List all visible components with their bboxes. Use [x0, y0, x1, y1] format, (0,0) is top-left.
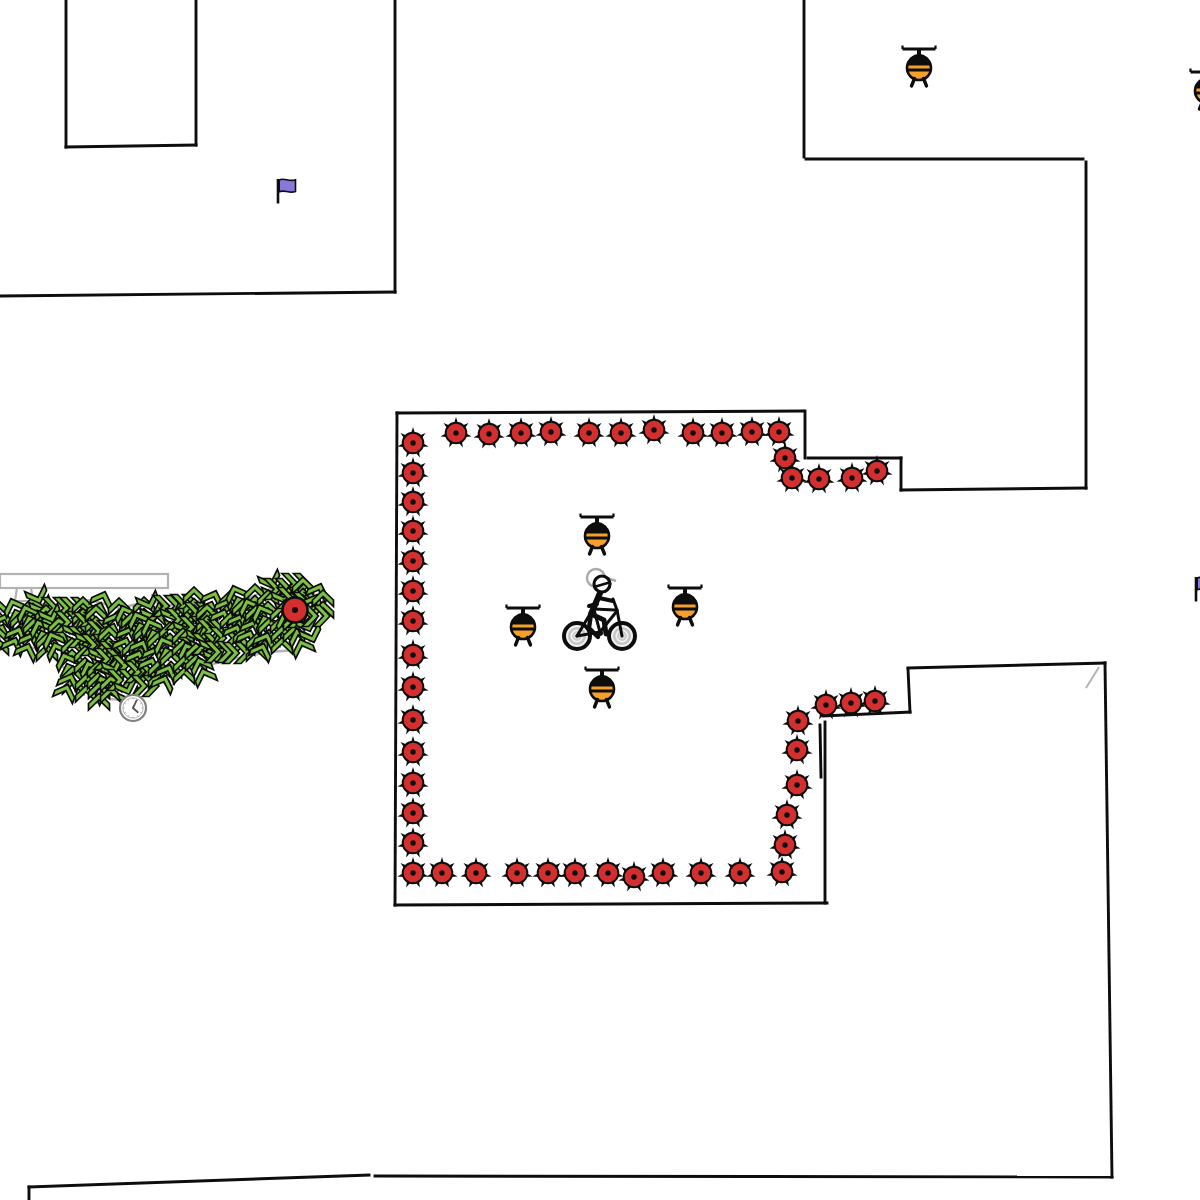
mine-icon: [638, 414, 669, 444]
mine-icon: [397, 457, 428, 487]
mine-icon: [397, 575, 428, 605]
wall-line: [1105, 663, 1112, 1177]
helicopter-icon: [1191, 69, 1200, 110]
walls-layer: [0, 0, 1112, 1200]
mine-icon: [501, 857, 532, 887]
mine-icon: [397, 515, 428, 545]
mine-icon: [559, 857, 590, 887]
mine-icon: [535, 416, 566, 446]
helicopter-icon: [507, 605, 540, 646]
flag-icon: [278, 179, 296, 204]
mine-icon: [724, 857, 755, 887]
cyclist-player: [564, 569, 635, 649]
corner-mark: [1086, 667, 1099, 688]
clock-tick: [124, 703, 125, 704]
wall-line: [908, 663, 1105, 668]
wall-line: [395, 903, 827, 905]
helicopter-icon: [586, 667, 619, 708]
helicopter-icon: [903, 46, 936, 87]
red-ball-icon: [283, 598, 308, 623]
clock-tick: [128, 699, 129, 700]
trees-layer: [0, 569, 334, 710]
mine-icon: [397, 486, 428, 516]
clock-tick: [128, 715, 129, 716]
mine-icon: [647, 857, 678, 887]
mine-icon: [440, 417, 471, 447]
wall-line: [908, 669, 910, 712]
mine-icon: [771, 799, 802, 829]
mine-icon: [677, 417, 708, 447]
mine-icon: [473, 418, 504, 448]
mine-icon: [397, 797, 428, 827]
stand-bar: [0, 574, 168, 588]
mine-icon: [736, 416, 767, 446]
mine-icon: [803, 463, 834, 493]
wall-line: [66, 145, 196, 147]
clock-tick: [140, 703, 141, 704]
helicopter-icon: [669, 585, 702, 626]
wall-line: [901, 488, 1086, 490]
scene-svg: [0, 0, 1200, 1200]
game-canvas[interactable]: [0, 0, 1200, 1200]
mine-icon: [397, 671, 428, 701]
wall-line: [823, 712, 910, 716]
clock-tick: [124, 712, 125, 713]
sprites-layer: [120, 46, 1200, 892]
mine-icon: [426, 857, 457, 887]
mine-icon: [397, 827, 428, 857]
mine-icon: [859, 685, 890, 715]
mine-icon: [397, 704, 428, 734]
wall-line: [29, 1175, 369, 1187]
stand-leg: [15, 588, 17, 601]
mine-icon: [706, 417, 737, 447]
red-ball-center: [292, 607, 298, 613]
mine-icon: [763, 416, 794, 446]
wall-line: [820, 725, 821, 777]
mine-icon: [781, 769, 812, 799]
helicopter-icon: [581, 514, 614, 555]
mine-icon: [573, 417, 604, 447]
mine-icon: [397, 736, 428, 766]
clock-icon: [120, 695, 146, 721]
mine-icon: [769, 829, 800, 859]
mine-icon: [618, 861, 649, 891]
clock-tick: [140, 712, 141, 713]
mine-icon: [397, 605, 428, 635]
wall-line: [375, 1176, 1112, 1177]
mine-icon: [766, 856, 797, 886]
rider-arm: [599, 598, 613, 601]
mine-icon: [781, 734, 812, 764]
bicycle-frame: [594, 609, 615, 610]
mine-icon: [397, 545, 428, 575]
mine-icon: [592, 857, 623, 887]
mine-icon: [532, 857, 563, 887]
clock-tick: [137, 715, 138, 716]
flag-icon: [1196, 577, 1200, 602]
mine-icon: [782, 705, 813, 735]
mine-icon: [505, 417, 536, 447]
wall-line: [395, 413, 397, 905]
wall-line: [397, 411, 803, 413]
mine-icon: [836, 462, 867, 492]
mine-icon: [397, 427, 428, 457]
mine-icon: [605, 417, 636, 447]
mine-icon: [397, 767, 428, 797]
mine-icon: [460, 857, 491, 887]
mine-icon: [397, 639, 428, 669]
mine-icon: [685, 857, 716, 887]
mine-icon: [397, 857, 428, 887]
wall-line: [0, 292, 395, 296]
